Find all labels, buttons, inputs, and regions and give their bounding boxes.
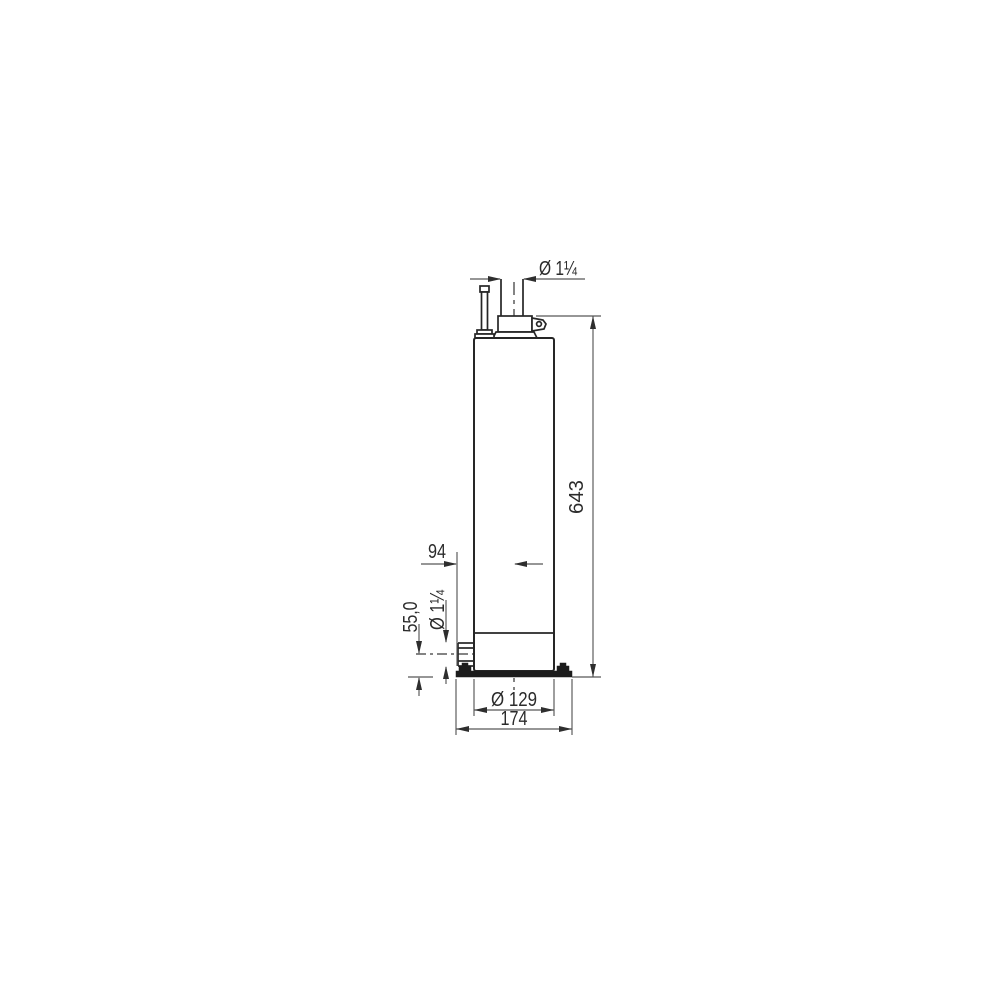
dim-label-inlet-offset: 94 — [428, 541, 446, 563]
dim-label-inlet-diameter: Ø 1¼ — [427, 590, 449, 630]
arrowhead-right — [559, 726, 572, 732]
cable-end-cap — [480, 286, 489, 292]
base-plate-bar — [456, 671, 572, 677]
arrowhead-left — [523, 276, 536, 282]
arrowhead-down — [416, 641, 422, 654]
cable — [482, 292, 488, 330]
drawing-canvas: Ø 1¼ 643 94 Ø 1¼ — [0, 0, 1000, 1000]
pump-dimension-drawing: Ø 1¼ 643 94 Ø 1¼ — [0, 0, 1000, 1000]
dim-label-inlet-center-height: 55,0 — [400, 602, 422, 633]
right-foot — [557, 666, 569, 671]
dim-inlet-diameter: Ø 1¼ — [427, 590, 449, 684]
dim-label-discharge-diameter: Ø 1¼ — [539, 258, 577, 280]
left-foot — [459, 666, 471, 671]
arrowhead-right — [541, 707, 554, 713]
dim-label-overall-height: 643 — [566, 480, 588, 514]
right-foot-nub — [560, 663, 566, 666]
arrowhead-down — [590, 664, 596, 677]
arrowhead-up — [443, 666, 449, 679]
dim-discharge-diameter: Ø 1¼ — [470, 258, 585, 282]
pump-body — [474, 338, 554, 671]
left-foot-nub — [462, 663, 468, 666]
arrowhead-left — [474, 707, 487, 713]
lug-hole — [537, 322, 542, 327]
discharge-collar — [498, 316, 532, 332]
arrowhead-down — [443, 630, 449, 643]
arrowhead-up — [416, 677, 422, 690]
arrowhead-up — [590, 316, 596, 329]
arrowhead-right — [488, 276, 501, 282]
dim-label-base-width: 174 — [501, 708, 528, 730]
pump-outline — [458, 279, 554, 671]
arrowhead-left — [456, 726, 469, 732]
